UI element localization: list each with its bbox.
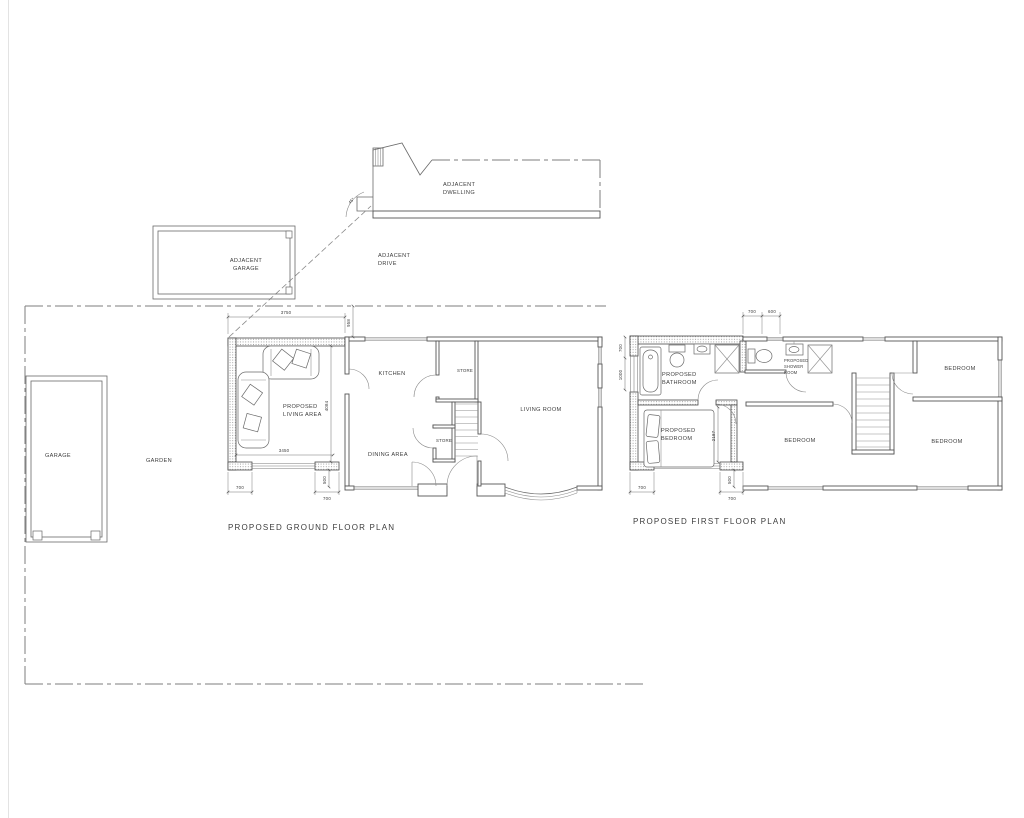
store-mid-label: STORE	[436, 438, 452, 443]
garden-label: GARDEN	[146, 458, 172, 464]
adjacent-garage: ADJACENT GARAGE	[153, 226, 295, 299]
garage-label: GARAGE	[45, 453, 71, 459]
ground-house-walls	[345, 337, 602, 496]
dim-700-left: 700	[236, 485, 244, 490]
ground-door-swings	[349, 369, 508, 486]
bathroom-label-line2: BATHROOM	[662, 380, 697, 386]
dim-700-bottom-right: 700	[728, 496, 736, 501]
first-floor-title: PROPOSED FIRST FLOOR PLAN	[633, 517, 786, 526]
bathroom-toilet	[669, 345, 685, 367]
ground-floor-title: PROPOSED GROUND FLOOR PLAN	[228, 523, 395, 532]
bedroom-front-label: BEDROOM	[931, 439, 962, 445]
adjacent-garage-label-line2: GARAGE	[233, 266, 259, 272]
plan-drawing: ADJACENT DWELLING 45° ADJACENT DRIVE ADJ…	[0, 0, 1024, 818]
shower-room-label-line2: SHOWER	[784, 364, 803, 369]
garage: GARAGE	[26, 376, 107, 542]
ground-partitions	[433, 341, 481, 486]
first-floor-plan: PROPOSED BATHROOM PROPOSED BEDROOM PROPO…	[618, 309, 1002, 526]
dim-700-right: 700	[323, 496, 331, 501]
dim-700-bottom-left: 700	[638, 485, 646, 490]
dim-700-top: 700	[748, 309, 756, 314]
bedroom-new-label-line1: PROPOSED	[661, 428, 696, 434]
bedroom-new-label-line2: BEDROOM	[661, 436, 692, 442]
adjacent-dwelling: ADJACENT DWELLING	[357, 143, 600, 218]
bedroom-mid-label: BEDROOM	[784, 438, 815, 444]
adjacent-drive: ADJACENT DRIVE	[378, 253, 411, 267]
store-top-label: STORE	[457, 368, 473, 373]
dim-2187: 2187	[711, 430, 716, 441]
sofa-left	[238, 372, 269, 448]
ground-floor-plan: PROPOSED LIVING AREA KITCHEN STORE STORE…	[228, 306, 602, 532]
shower-room-label-line1: PROPOSED	[784, 358, 808, 363]
dining-area-label: DINING AREA	[368, 452, 408, 458]
adjacent-garage-label-line1: ADJACENT	[230, 258, 263, 264]
dim-1000-side: 1000	[618, 369, 623, 380]
ground-stairs	[455, 404, 478, 456]
adjacent-drive-label-line2: DRIVE	[378, 261, 397, 267]
dim-3450: 3450	[279, 448, 290, 453]
site-boundary	[25, 306, 645, 684]
shower-toilet	[748, 349, 772, 363]
sofa-top	[263, 346, 319, 379]
first-house-walls	[743, 337, 1002, 490]
shower-room-label-line3: ROOM	[784, 370, 798, 375]
bathtub	[640, 347, 661, 395]
living-area-label-line1: PROPOSED	[283, 404, 318, 410]
sightline-angle-label: 45°	[347, 196, 355, 204]
first-stairs	[856, 378, 890, 447]
dim-500-first: 500	[727, 476, 732, 484]
sight-line: 45°	[229, 192, 371, 337]
dim-500-ground: 500	[322, 476, 327, 484]
bathroom-label-line1: PROPOSED	[662, 372, 697, 378]
adjacent-dwelling-label-line1: ADJACENT	[443, 182, 476, 188]
adjacent-drive-label-line1: ADJACENT	[378, 253, 411, 259]
first-cupboards	[715, 345, 832, 373]
shower-basin	[786, 341, 803, 355]
living-room-label: LIVING ROOM	[520, 407, 561, 413]
dim-3750: 3750	[281, 310, 292, 315]
dim-958: 958	[346, 319, 351, 327]
bedroom-rear-label: BEDROOM	[944, 366, 975, 372]
bathroom-basin	[694, 344, 710, 354]
first-door-swings	[698, 372, 913, 424]
living-area-label-line2: LIVING AREA	[283, 412, 322, 418]
dim-4084: 4084	[324, 400, 329, 411]
dim-700-side: 700	[618, 344, 623, 352]
bay-window	[505, 487, 577, 500]
dim-600-top: 600	[768, 309, 776, 314]
kitchen-label: KITCHEN	[378, 371, 405, 377]
floor-plan-sheet: ADJACENT DWELLING 45° ADJACENT DRIVE ADJ…	[0, 0, 1024, 818]
adjacent-dwelling-label-line2: DWELLING	[443, 190, 475, 196]
